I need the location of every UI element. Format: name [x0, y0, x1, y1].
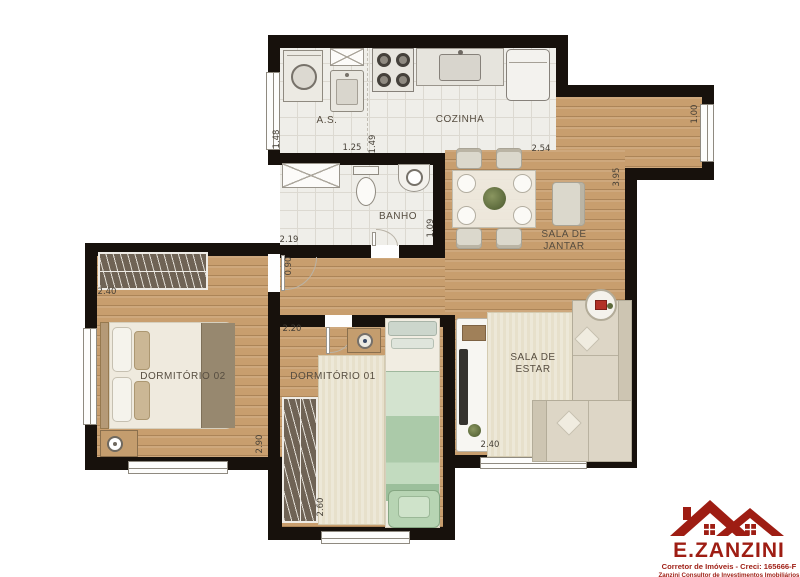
dim-bedroom2-width: 2.40	[93, 287, 121, 297]
bedroom1-blanket	[386, 371, 439, 501]
bedroom2-pillow-accent	[134, 331, 150, 370]
dim-service-height: 1.48	[272, 126, 282, 152]
wall-entry-bottom	[625, 168, 714, 180]
brand-tagline: Corretor de Imóveis - Creci: 165666-F	[658, 562, 800, 571]
table-centerpiece-plant	[483, 187, 506, 210]
dim-bedroom1-height: 2.60	[316, 494, 326, 520]
wall-entry-top	[556, 85, 714, 97]
dim-bedroom2-door: 0.90	[284, 253, 294, 279]
dim-kitchen-width: 2.54	[527, 144, 555, 154]
bedroom2-bottom-window	[128, 461, 228, 474]
washing-machine	[283, 50, 323, 102]
room-label-living: SALA DE ESTAR	[493, 352, 573, 376]
bedroom1-door-opening	[325, 315, 352, 327]
media-box	[462, 325, 486, 341]
bathroom-sink	[406, 169, 423, 186]
dining-chair	[496, 228, 522, 249]
toilet-bowl	[356, 177, 376, 206]
room-label-bedroom2: DORMITÓRIO 02	[123, 371, 243, 382]
sofa-chaise	[532, 400, 632, 462]
bedroom2-nightstand	[100, 430, 138, 457]
dining-armchair	[552, 182, 585, 226]
bedroom1-pillow	[388, 321, 437, 336]
floor-plan: A.S. COZINHA BANHO SALA DE JANTAR SALA D…	[0, 0, 800, 577]
room-label-bedroom1: DORMITÓRIO 01	[273, 371, 393, 382]
side-table	[585, 289, 617, 321]
room-label-kitchen: COZINHA	[420, 114, 500, 125]
dim-dining-height: 3.95	[612, 164, 622, 190]
bedroom2-headboard	[100, 322, 109, 429]
dining-chair	[456, 228, 482, 249]
brand-subtitle: Zanzini Consultor de Investimentos Imobi…	[658, 572, 800, 577]
room-label-bathroom: BANHO	[368, 211, 428, 222]
wall-top	[268, 35, 568, 48]
dim-bathroom-height: 1.09	[426, 215, 436, 241]
plate	[457, 206, 476, 225]
rack-plant	[468, 424, 481, 437]
dim-bedroom1-width: 2.20	[278, 324, 306, 334]
tv	[459, 349, 468, 425]
bedroom1-nightstand	[347, 328, 381, 353]
house-roof-icon	[670, 496, 788, 536]
toilet-tank	[353, 166, 379, 175]
plate	[513, 174, 532, 193]
wall-left-step	[268, 457, 282, 540]
bathroom-door-opening	[371, 245, 399, 258]
bedroom2-pillow-accent	[134, 381, 150, 420]
side-table-decor	[595, 300, 607, 310]
plate	[513, 206, 532, 225]
brand-name: E.ZANZINI	[658, 541, 800, 561]
service-upper-cabinet	[330, 48, 364, 66]
wall-bedroom1-right	[443, 315, 455, 540]
bedroom2-side-window	[83, 328, 97, 425]
bedroom1-window	[321, 531, 410, 544]
plate	[457, 174, 476, 193]
kitchen-counter	[416, 48, 504, 86]
bedroom2-door-opening	[268, 254, 280, 292]
dim-service-width: 1.25	[338, 143, 366, 153]
dim-kitchen-height: 1.49	[368, 131, 378, 157]
bedroom1-pillow	[391, 338, 434, 349]
bedroom2-wardrobe	[98, 252, 208, 290]
kitchen-faucet	[458, 50, 463, 55]
entry-window	[700, 104, 714, 162]
bathroom-sink-counter	[398, 164, 430, 192]
dining-chair	[496, 148, 522, 169]
bedroom2-pillow	[112, 327, 132, 372]
dining-chair	[456, 148, 482, 169]
bedroom1-wardrobe	[282, 397, 318, 523]
fridge	[506, 49, 550, 101]
dim-bathroom-width: 2.19	[275, 235, 303, 245]
bedroom2-pillow	[112, 377, 132, 422]
room-label-dining: SALA DE JANTAR	[524, 229, 604, 253]
logo: E.ZANZINI Corretor de Imóveis - Creci: 1…	[658, 496, 800, 577]
stove	[372, 48, 414, 92]
laundry-tank	[330, 70, 364, 112]
wall-bath-right	[433, 153, 445, 258]
shower-box	[282, 163, 340, 188]
bedroom1-armchair	[388, 490, 440, 528]
dim-bedroom2-height: 2.90	[255, 431, 265, 457]
room-label-service: A.S.	[307, 115, 347, 126]
dim-living-width: 2.40	[476, 440, 504, 450]
dim-entry-width: 1.00	[690, 101, 700, 127]
kitchen-sink	[439, 54, 481, 81]
